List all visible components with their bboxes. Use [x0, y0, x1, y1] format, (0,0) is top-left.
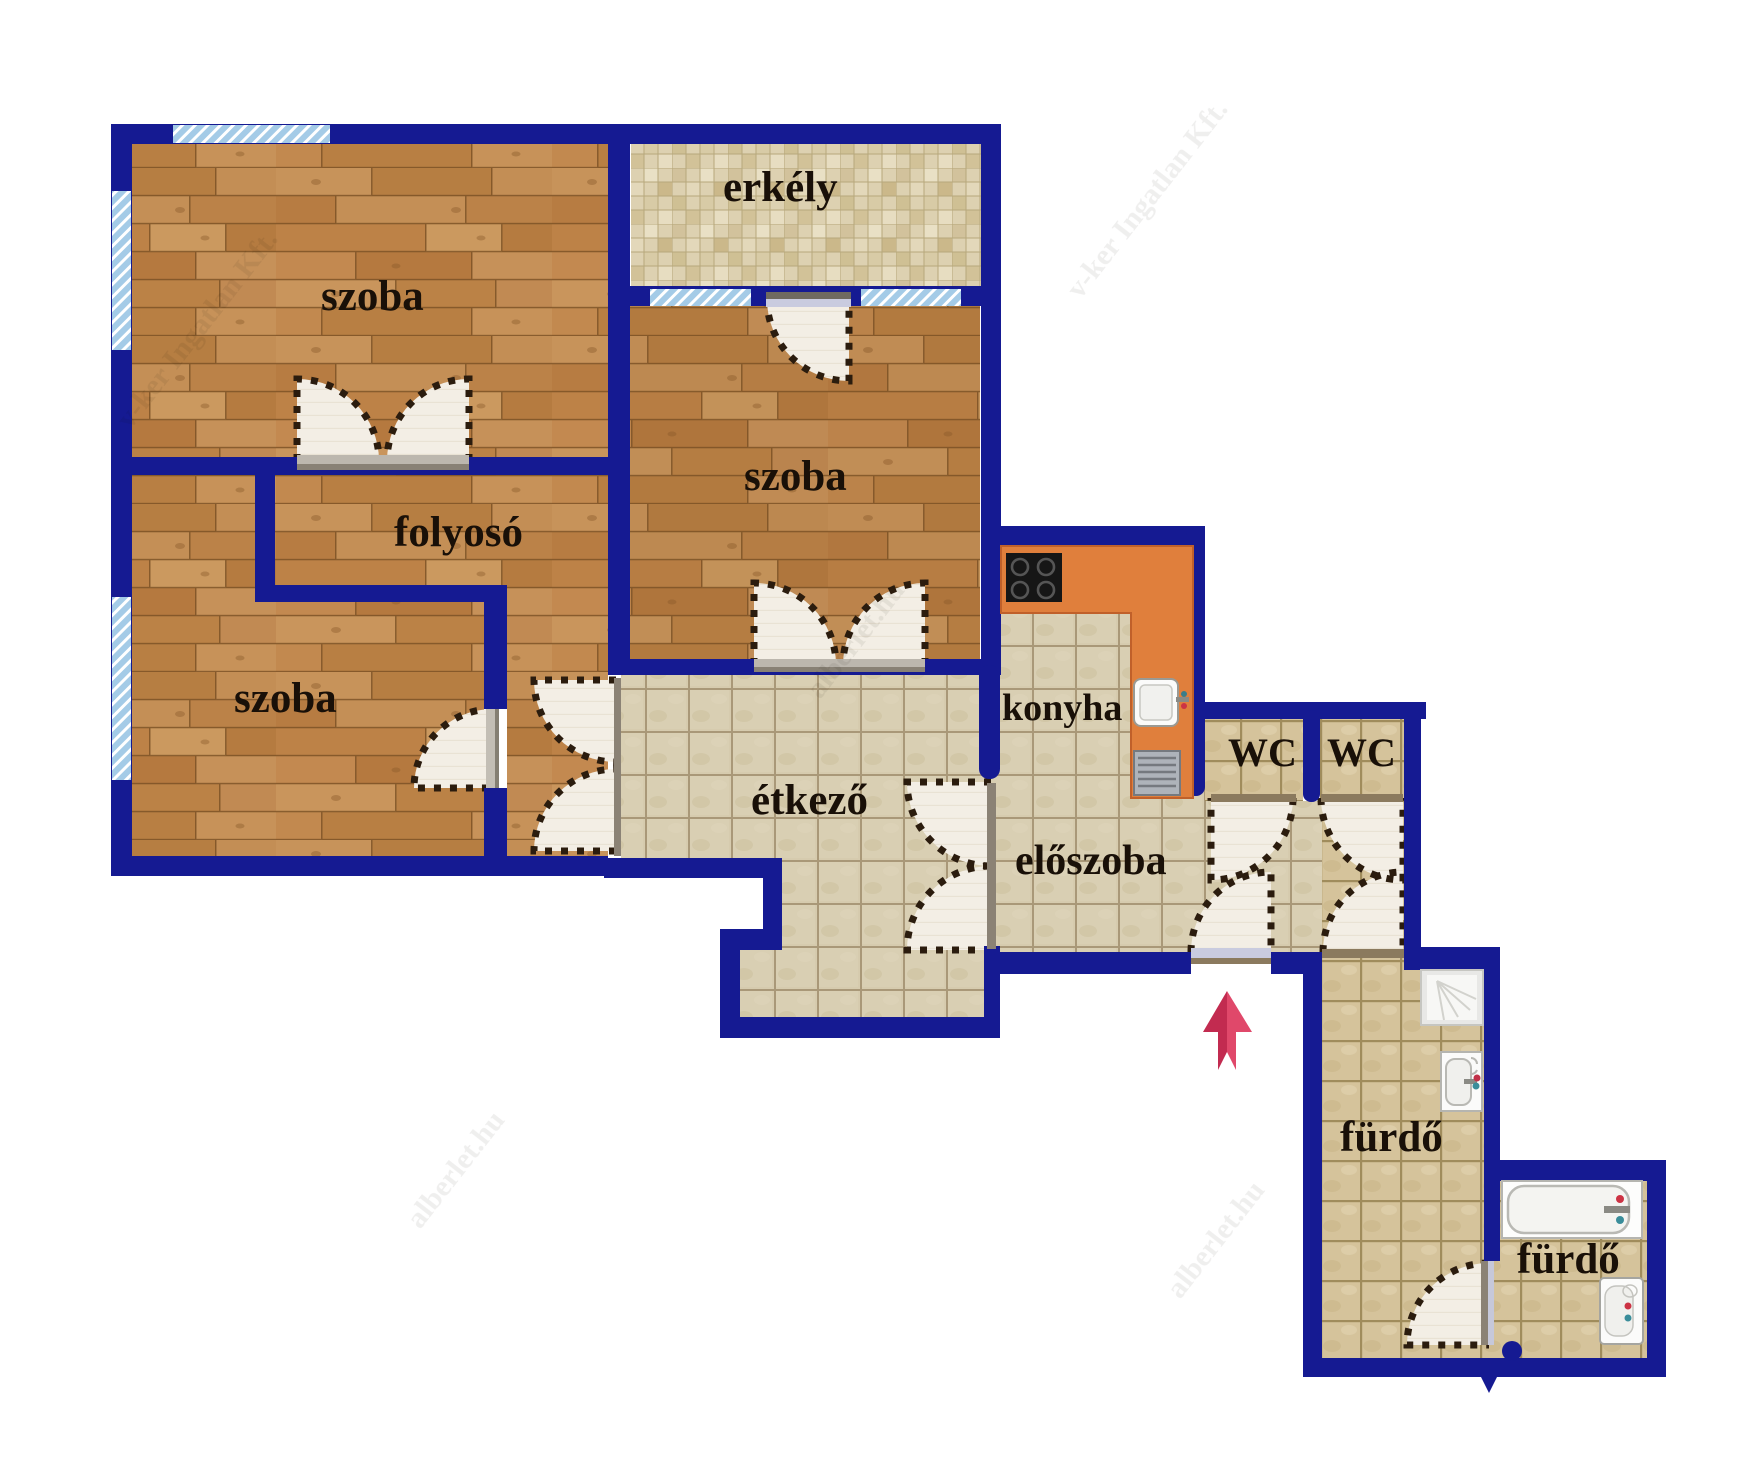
svg-text:konyha: konyha [1002, 687, 1122, 729]
svg-text:szoba: szoba [321, 273, 424, 320]
svg-text:fürdő: fürdő [1517, 1236, 1620, 1283]
svg-text:szoba: szoba [234, 675, 337, 722]
svg-text:erkély: erkély [723, 164, 838, 211]
svg-text:előszoba: előszoba [1015, 838, 1167, 884]
svg-text:folyosó: folyosó [394, 509, 523, 556]
svg-text:étkező: étkező [751, 777, 868, 824]
svg-text:fürdő: fürdő [1340, 1114, 1443, 1161]
svg-text:szoba: szoba [744, 453, 847, 500]
svg-text:WC: WC [1228, 730, 1297, 775]
svg-text:WC: WC [1327, 730, 1396, 775]
